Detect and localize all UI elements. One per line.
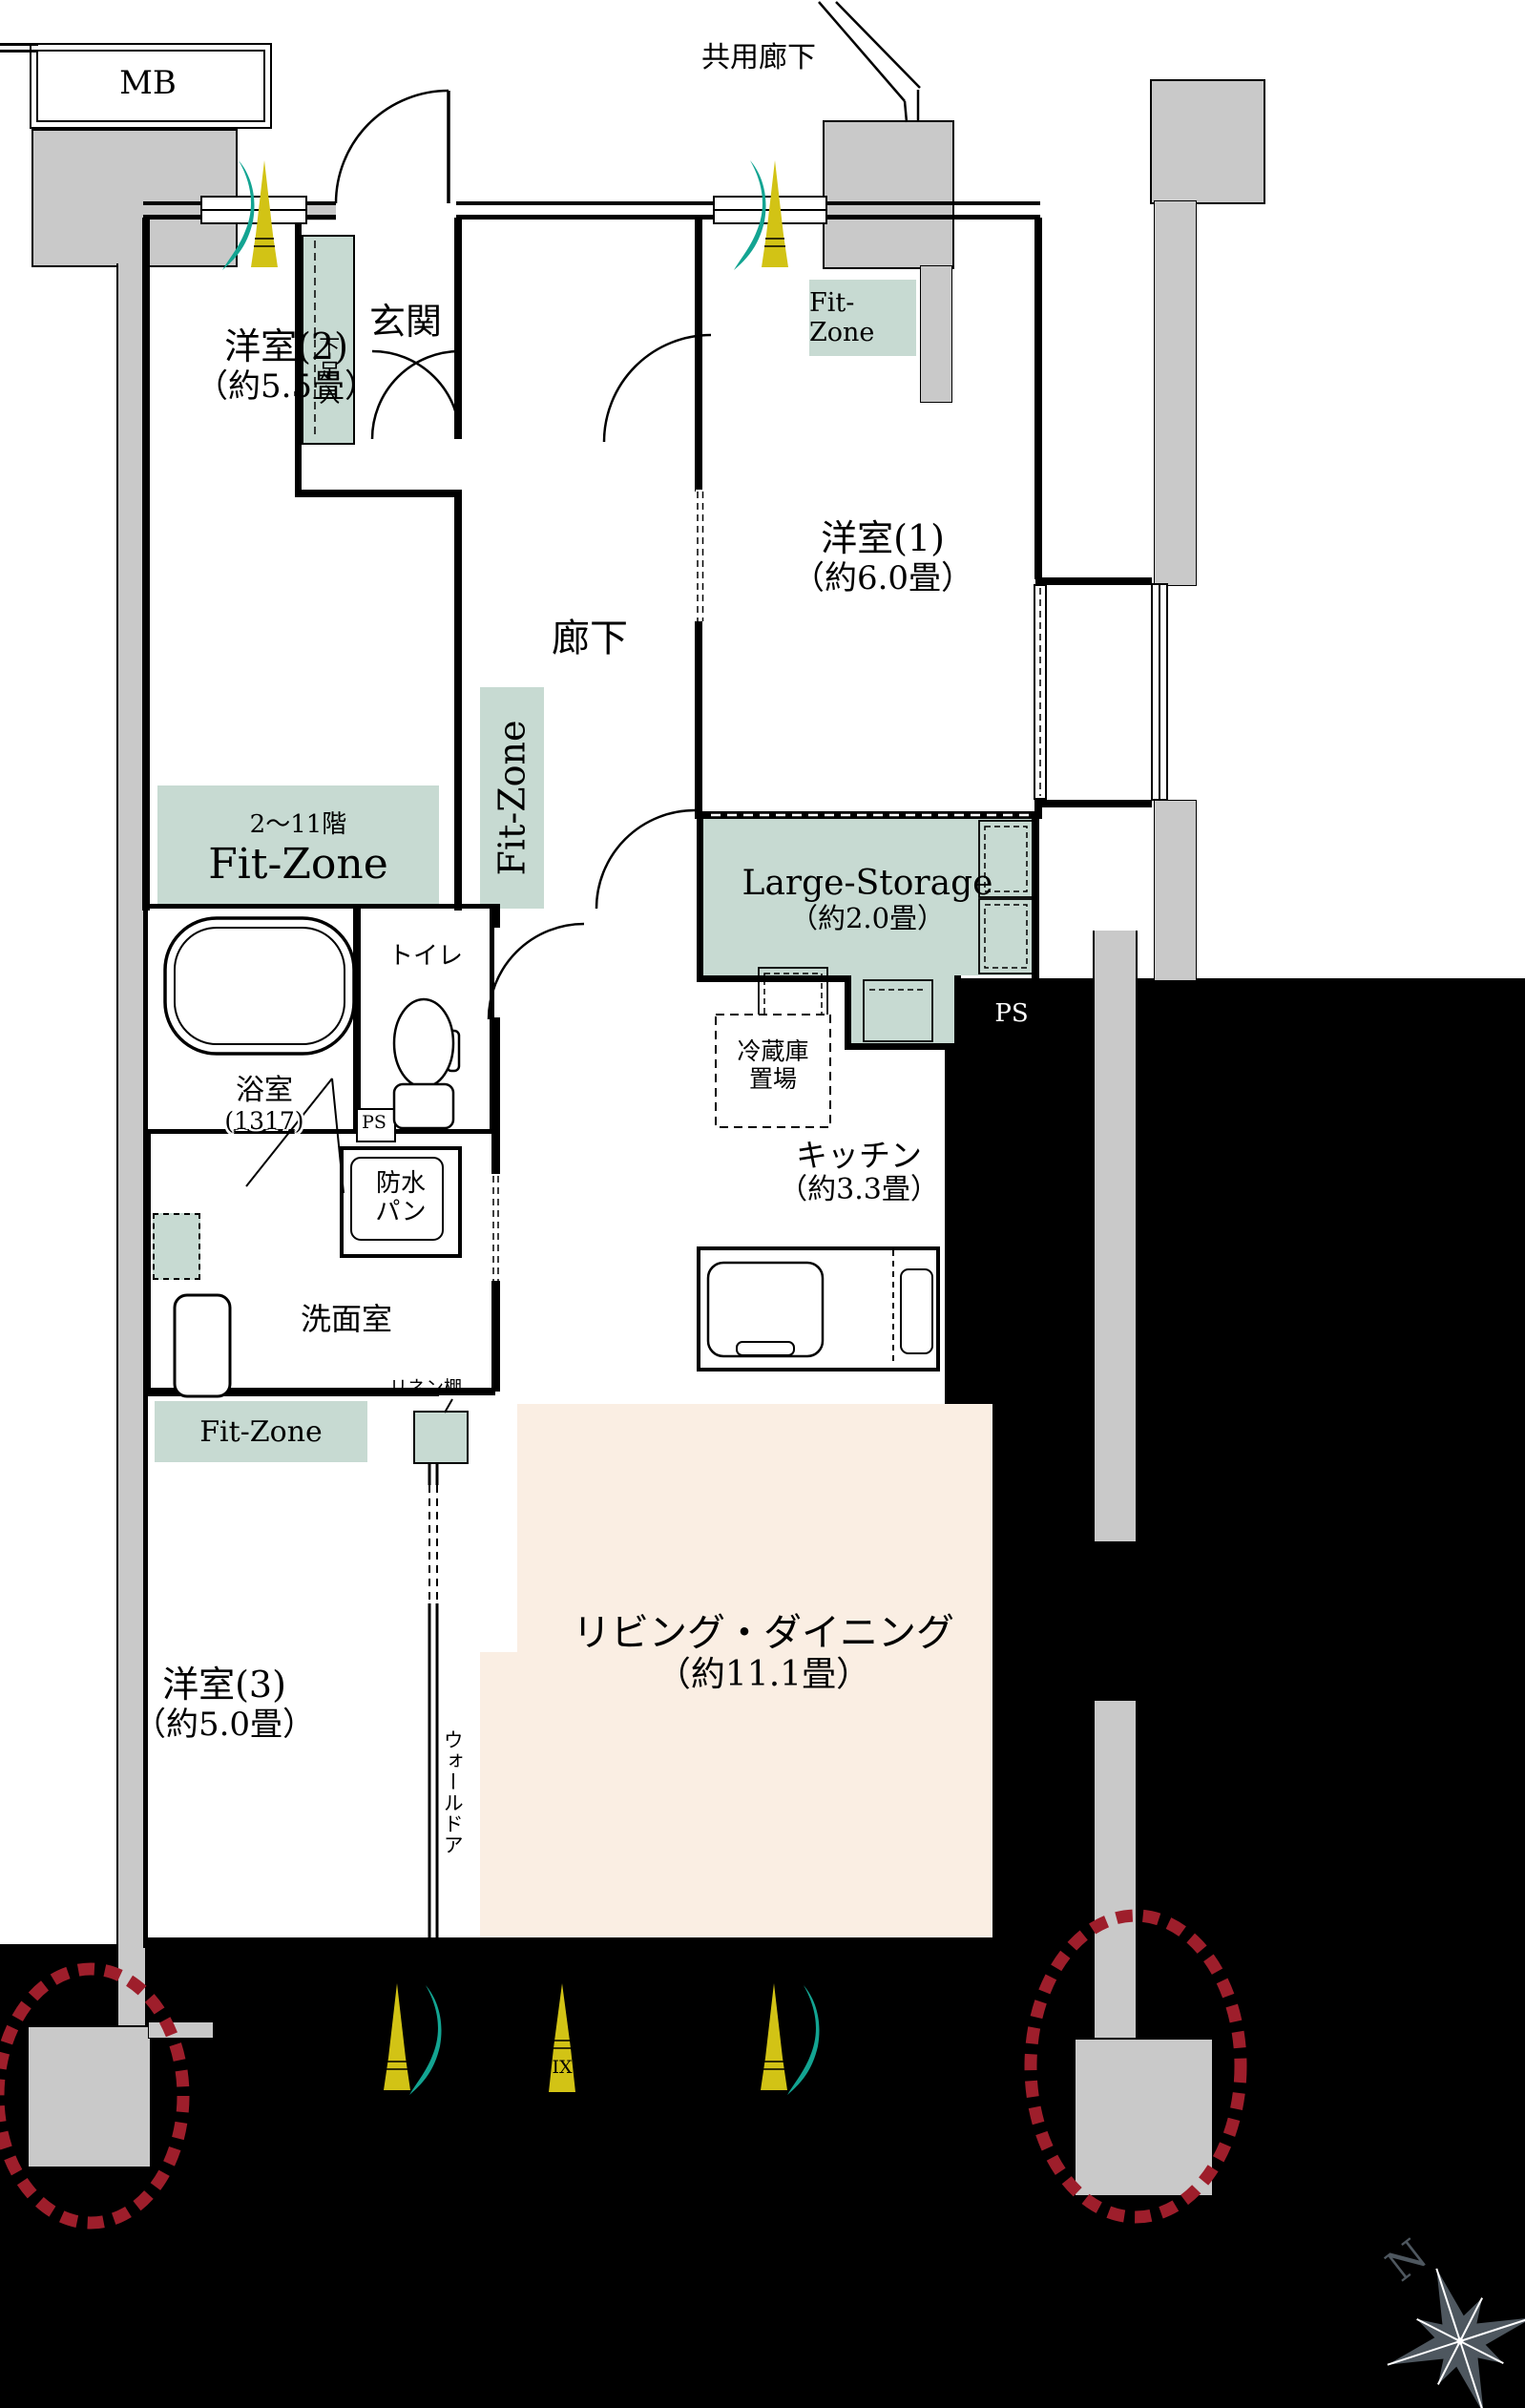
fridge-line1: 冷蔵庫 bbox=[721, 1038, 825, 1066]
ps-main-label: PS bbox=[983, 1000, 1040, 1029]
washroom-label: 洗面室 bbox=[270, 1302, 423, 1337]
mb-label: MB bbox=[91, 65, 205, 102]
wall-door-label: ウォールドア bbox=[441, 1729, 464, 1855]
room-name: 洋室(2) bbox=[162, 326, 410, 368]
living-dining-label: リビング・ダイニング （約11.1畳） bbox=[525, 1611, 1002, 1694]
toilet-icon bbox=[394, 999, 459, 1128]
window-icon bbox=[201, 197, 1167, 800]
stove-icon bbox=[901, 1269, 932, 1353]
fridge-line2: 置場 bbox=[721, 1066, 825, 1094]
compass-rose-icon bbox=[1364, 2245, 1525, 2408]
room1-label: 洋室(1) （約6.0畳） bbox=[754, 518, 1012, 597]
bathtub-icon bbox=[165, 918, 354, 1054]
corridor-label: 廊下 bbox=[542, 617, 637, 660]
pillar-circle-icon bbox=[0, 1916, 1241, 2223]
fridge-label: 冷蔵庫 置場 bbox=[721, 1038, 825, 1094]
kitchen-label: キッチン （約3.3畳） bbox=[754, 1138, 964, 1206]
pan-line2: パン bbox=[349, 1199, 452, 1227]
room-size: (1317) bbox=[207, 1108, 322, 1136]
room-name: リビング・ダイニング bbox=[525, 1611, 1002, 1655]
room-name: 浴室 bbox=[207, 1075, 322, 1108]
room-size: （約6.0畳） bbox=[754, 560, 1012, 597]
north-label: N bbox=[1377, 2230, 1436, 2292]
room-name: 洋室(1) bbox=[754, 518, 1012, 560]
room-name: 洋室(3) bbox=[91, 1665, 358, 1707]
room-size: （約5.0畳） bbox=[91, 1707, 358, 1744]
room-size: （約5.5畳） bbox=[162, 368, 410, 406]
room3-label: 洋室(3) （約5.0畳） bbox=[91, 1665, 358, 1744]
waterproof-pan-label: 防水 パン bbox=[349, 1170, 452, 1227]
storage-label: Large-Storage （約2.0畳） bbox=[705, 864, 1030, 935]
common-corridor-label: 共用廊下 bbox=[663, 42, 854, 75]
room2-label: 洋室(2) （約5.5畳） bbox=[162, 326, 410, 406]
room-name: キッチン bbox=[754, 1138, 964, 1174]
kitchen-sink-icon bbox=[708, 1263, 823, 1356]
toilet-label: トイレ bbox=[378, 943, 473, 972]
bathroom-label: 浴室 (1317) bbox=[207, 1075, 322, 1135]
room-name: Large-Storage bbox=[705, 864, 1030, 903]
room-size: （約11.1畳） bbox=[525, 1655, 1002, 1694]
linen-label: リネン棚 bbox=[387, 1378, 464, 1399]
linen-pointer bbox=[445, 1399, 452, 1413]
floor-plan: 2〜11階 Fit-Zone Fit-Zone Fit-Zone Fit-Zon… bbox=[0, 0, 1525, 2408]
pan-line1: 防水 bbox=[349, 1170, 452, 1199]
room-size: （約2.0畳） bbox=[705, 903, 1030, 934]
wall-door-line bbox=[424, 1462, 441, 1939]
ix-mark: IX bbox=[552, 2057, 573, 2078]
room-size: （約3.3畳） bbox=[754, 1174, 964, 1207]
ps-small-label: PS bbox=[356, 1113, 392, 1134]
washbasin-icon bbox=[175, 1295, 230, 1396]
